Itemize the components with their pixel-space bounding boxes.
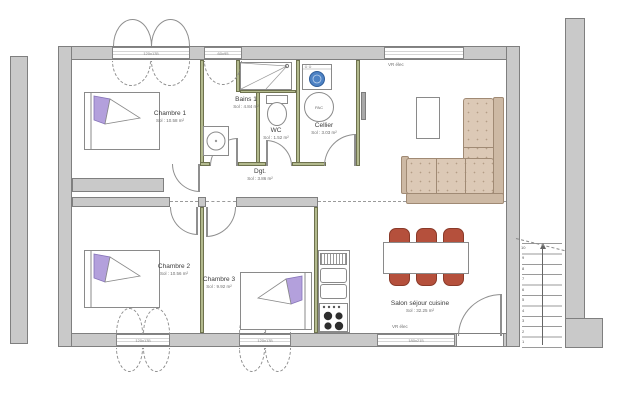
room-area: Sol : 3.86 m² (238, 176, 282, 182)
washing-machine (302, 64, 332, 90)
casement-arc (116, 308, 143, 334)
room-area: Sol : 9.92 m² (180, 284, 258, 290)
stair-step-number: 3 (522, 318, 524, 323)
dining-table (383, 242, 469, 274)
window-size-label: 120x135 (143, 51, 158, 56)
chambre1-south-wall (72, 178, 164, 192)
window-chambre2: 120x135 (116, 334, 170, 346)
hall-north-wall-seg3 (292, 162, 326, 166)
room-label-chambre3: Chambre 3 Sol : 9.92 m² (180, 276, 258, 290)
washbasin (203, 126, 229, 156)
casement-arc (143, 308, 170, 334)
room-area: Sol : 32.25 m² (370, 308, 470, 314)
window-size-label: 180x215 (408, 338, 423, 343)
stair-step-number: 9 (522, 255, 524, 260)
room-name: Salon séjour cuisine (370, 300, 470, 308)
sink-basin (320, 268, 347, 283)
sink-basin (320, 284, 347, 299)
room-name: Bains 1 (220, 96, 272, 104)
room-name: Chambre 3 (180, 276, 258, 284)
room-name: Cellier (300, 122, 348, 130)
window-sejour-bottom: 180x215 (377, 334, 455, 346)
window-size-label: 60x95 (218, 51, 229, 56)
stairs-arrow-line (542, 249, 543, 345)
stair-step-number: 1 (522, 339, 524, 344)
room-label-wc: WC Sol : 1.52 m² (258, 127, 294, 141)
window-chambre3: 120x135 (239, 334, 291, 346)
casement-arc (151, 61, 190, 86)
hall-south-wall-seg1 (72, 197, 170, 207)
house-wall-left (58, 46, 72, 347)
room-label-chambre1: Chambre 1 Sol : 10.58 m² (130, 110, 210, 124)
window-bains: 60x95 (204, 47, 242, 59)
hall-north-wall-seg2 (238, 162, 266, 166)
door-arc-chambre3 (206, 207, 236, 237)
hall-north-wall-seg1 (200, 162, 210, 166)
stair-step-number: 7 (522, 276, 524, 281)
room-area: Sol : 10.58 m² (130, 118, 210, 124)
partition-cellier-sejour (356, 60, 360, 166)
room-area: Sol : 3.03 m² (300, 130, 348, 136)
door-leaf-chambre1 (198, 164, 200, 192)
room-name: Chambre 1 (130, 110, 210, 118)
sofa-back-bottom (406, 193, 504, 204)
shutter-arc (151, 19, 190, 46)
left-boundary-wall (10, 56, 28, 344)
floor-plan: 120x135 60x95 120x135 120x135 180x215 P (0, 0, 640, 410)
partition-under-shower (240, 90, 296, 93)
room-label-salon: Salon séjour cuisine Sol : 32.25 m² (370, 300, 470, 314)
hall-south-wall-seg2 (198, 197, 206, 207)
sofa-seat-horizontal (406, 158, 494, 194)
shower (240, 62, 292, 90)
bed-chambre2 (84, 250, 160, 308)
shutter-arc (265, 348, 291, 372)
door-arc-chambre1 (172, 164, 200, 192)
room-name: WC (258, 127, 294, 135)
stair-step-number: 5 (522, 297, 524, 302)
room-label-dgt: Dgt. Sol : 3.86 m² (238, 168, 282, 182)
room-area: Sol : 1.52 m² (258, 135, 294, 141)
room-label-bains: Bains 1 Sol : 4.84 m² (220, 96, 272, 110)
room-label-cellier: Cellier Sol : 3.03 m² (300, 122, 348, 136)
dish-drainer (320, 253, 347, 265)
stair-step-number: 10 (521, 245, 525, 250)
right-boundary-wall (565, 18, 585, 348)
stove (319, 303, 348, 332)
coffee-table (416, 97, 440, 139)
door-leaf-chambre2 (196, 207, 198, 235)
door-leaf-cellier (354, 134, 356, 166)
heat-pump: PAC (304, 92, 334, 122)
door-leaf-bains (236, 138, 238, 166)
shutter-arc (116, 348, 143, 372)
shutter-arc (239, 348, 265, 372)
shutter-arc (143, 348, 170, 372)
casement-arc (112, 61, 151, 86)
window-size-label: 120x135 (135, 338, 150, 343)
partition-wc-cellier (296, 60, 300, 166)
door-leaf-wc (266, 140, 268, 166)
room-name: Dgt. (238, 168, 282, 176)
hall-south-wall-seg3 (236, 197, 318, 207)
window-chambre1: 120x135 (112, 47, 190, 59)
stair-step-number: 6 (522, 287, 524, 292)
sofa-back-right (493, 97, 504, 197)
door-arc-chambre2 (170, 207, 198, 235)
door-arc-wc (266, 140, 292, 166)
door-leaf-chambre3 (206, 207, 208, 237)
stair-step-number: 2 (522, 329, 524, 334)
vr-elec-label-bottom: VR élec (392, 324, 436, 329)
room-area: Sol : 4.84 m² (220, 104, 272, 110)
stair-step-number: 4 (522, 308, 524, 313)
hall-opening-dash-1 (170, 201, 198, 202)
radiator (361, 92, 366, 120)
window-sejour-top (384, 47, 464, 59)
vr-elec-label-top: VR élec (388, 62, 432, 67)
heat-pump-label: PAC (315, 105, 323, 110)
hall-opening-dash-2 (206, 201, 236, 202)
shutter-arc (113, 19, 152, 46)
entrance-door-leaf (500, 294, 502, 336)
right-boundary-wall-foot (565, 318, 603, 348)
room-name: Chambre 2 (134, 263, 214, 271)
door-arc-cellier (324, 134, 356, 166)
window-size-label: 120x135 (257, 338, 272, 343)
stair-step-number: 8 (522, 266, 524, 271)
house-wall-right (506, 46, 520, 347)
